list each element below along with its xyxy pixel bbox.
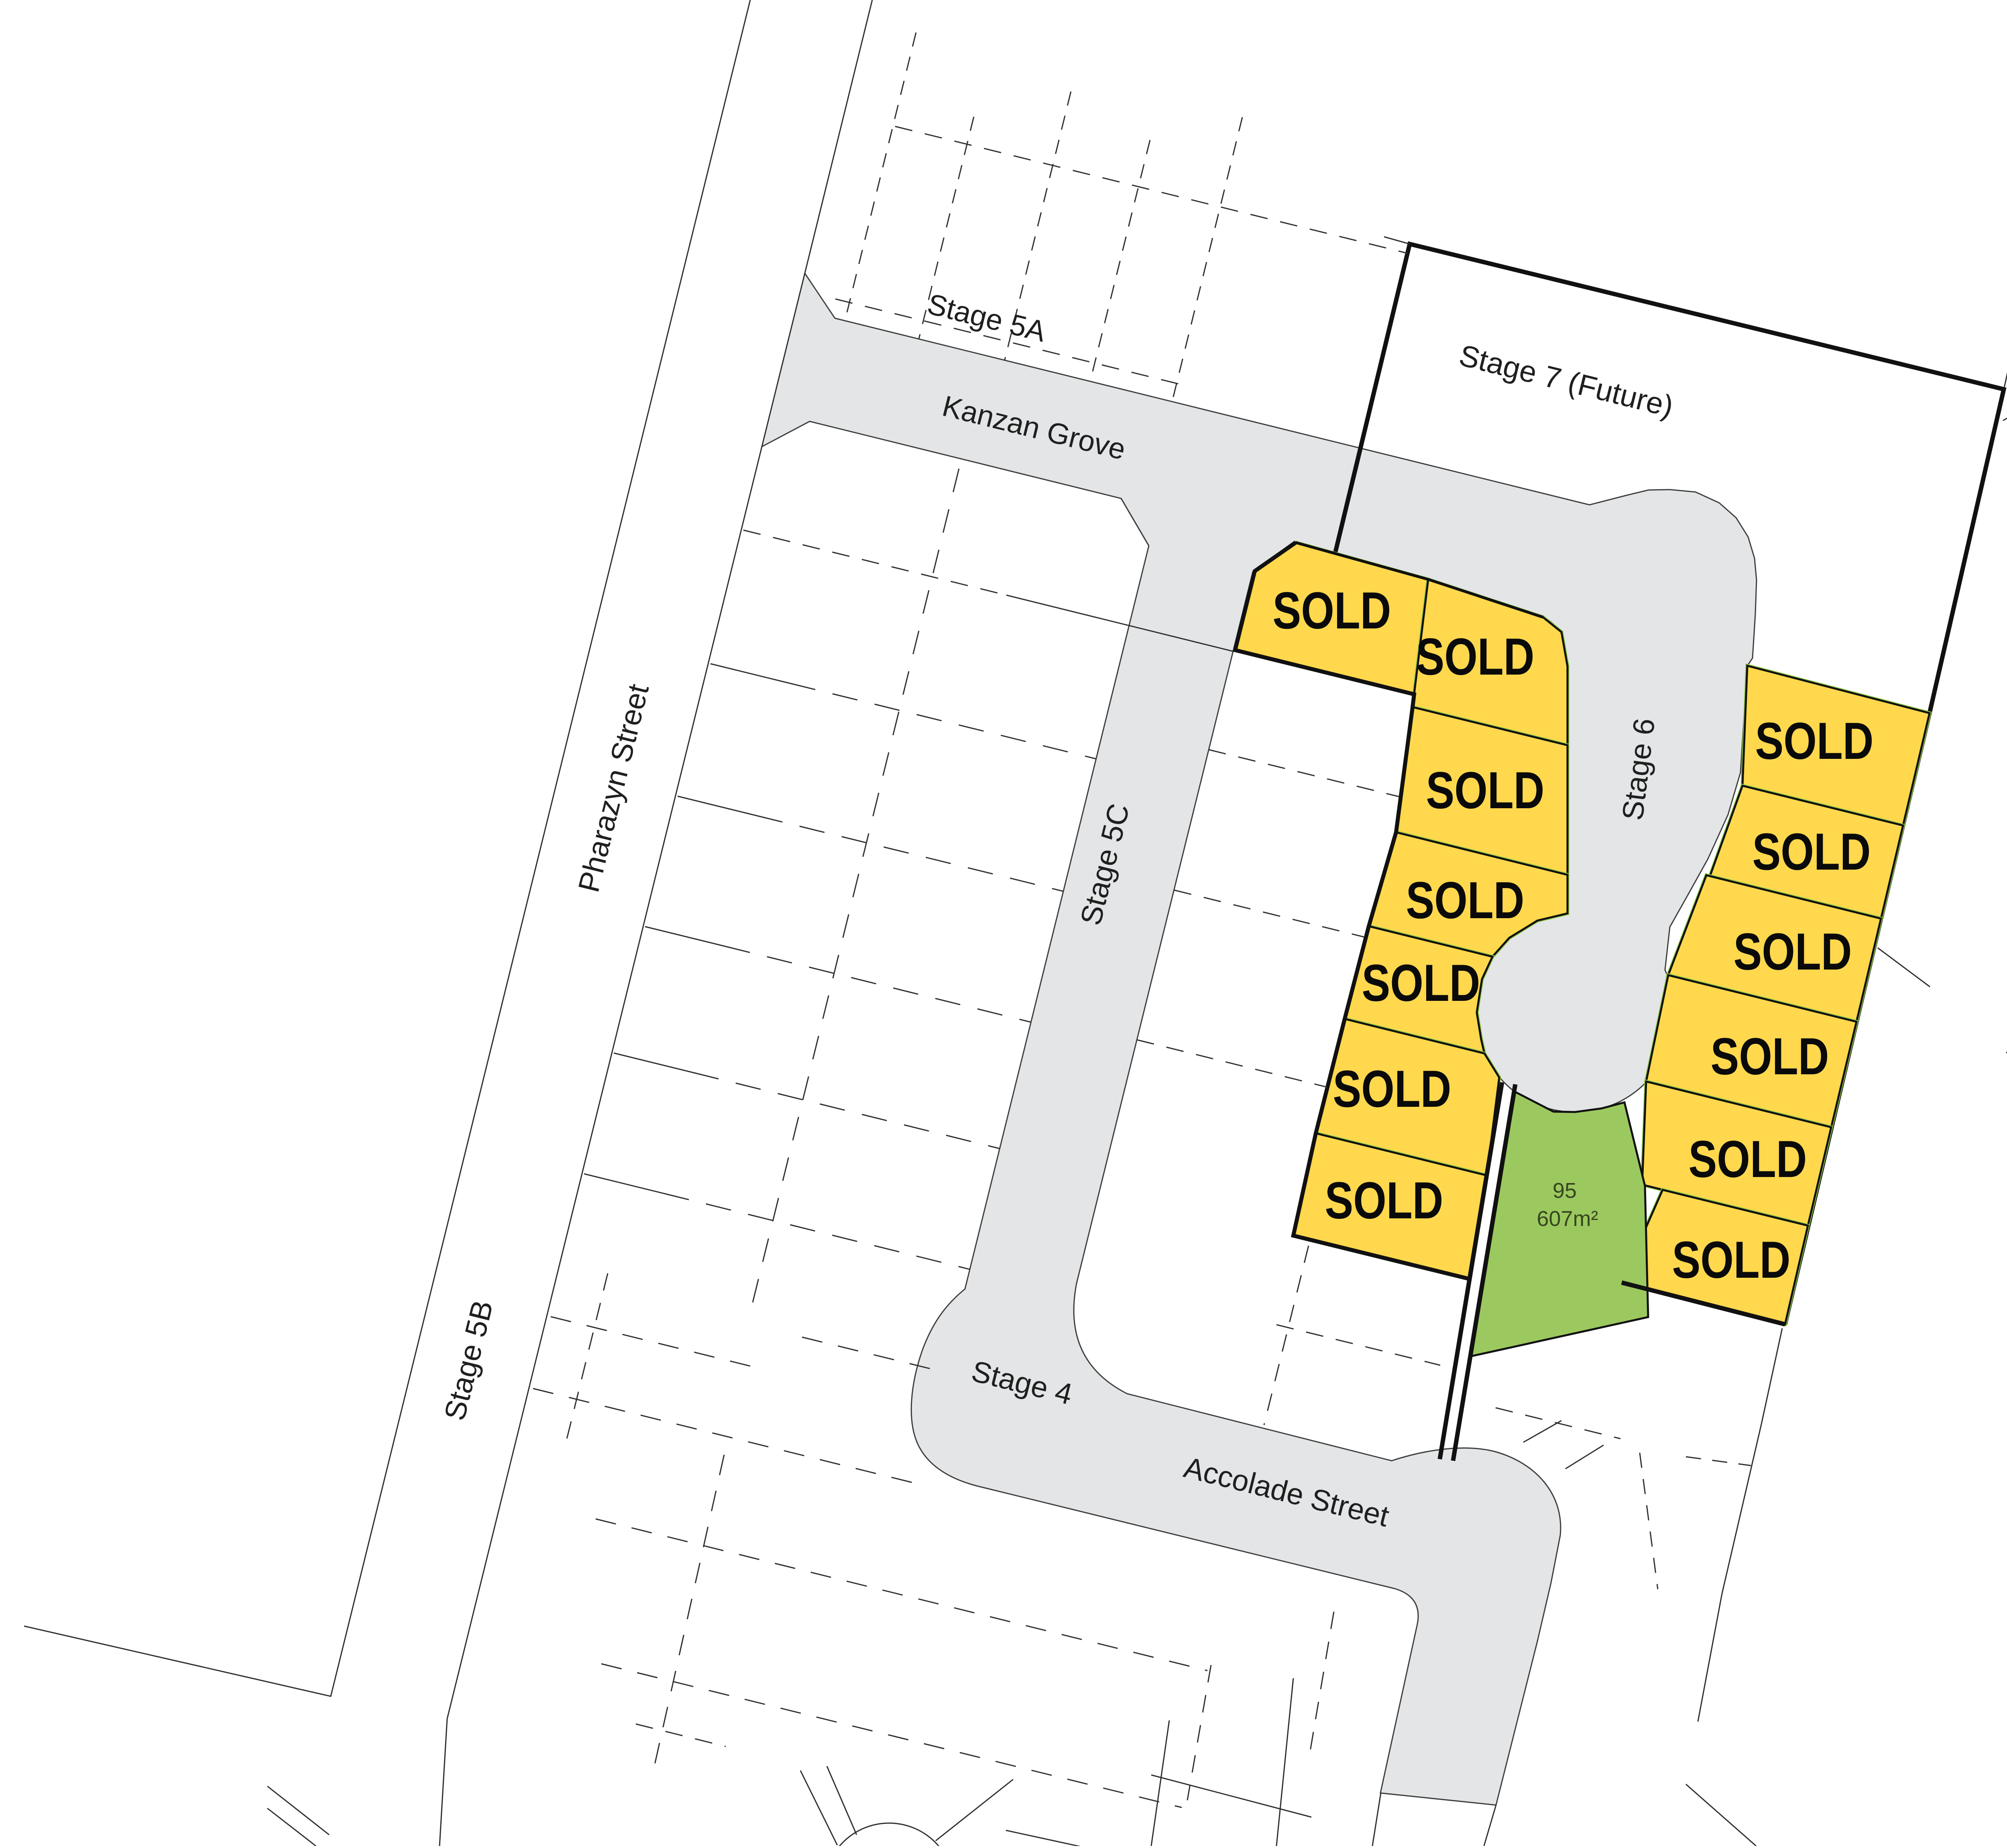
- svg-text:SOLD: SOLD: [1689, 1130, 1807, 1188]
- svg-text:95: 95: [1553, 1179, 1577, 1203]
- svg-text:SOLD: SOLD: [1734, 922, 1852, 981]
- svg-text:SOLD: SOLD: [1672, 1230, 1791, 1289]
- svg-text:SOLD: SOLD: [1753, 822, 1871, 881]
- svg-text:SOLD: SOLD: [1426, 761, 1545, 819]
- svg-text:SOLD: SOLD: [1406, 871, 1525, 929]
- svg-text:SOLD: SOLD: [1755, 712, 1874, 770]
- svg-text:607m²: 607m²: [1537, 1207, 1598, 1231]
- svg-text:SOLD: SOLD: [1273, 581, 1391, 640]
- svg-text:SOLD: SOLD: [1333, 1059, 1451, 1118]
- svg-text:SOLD: SOLD: [1362, 953, 1480, 1012]
- svg-text:SOLD: SOLD: [1711, 1027, 1829, 1086]
- svg-text:SOLD: SOLD: [1416, 627, 1535, 686]
- svg-text:SOLD: SOLD: [1325, 1171, 1443, 1230]
